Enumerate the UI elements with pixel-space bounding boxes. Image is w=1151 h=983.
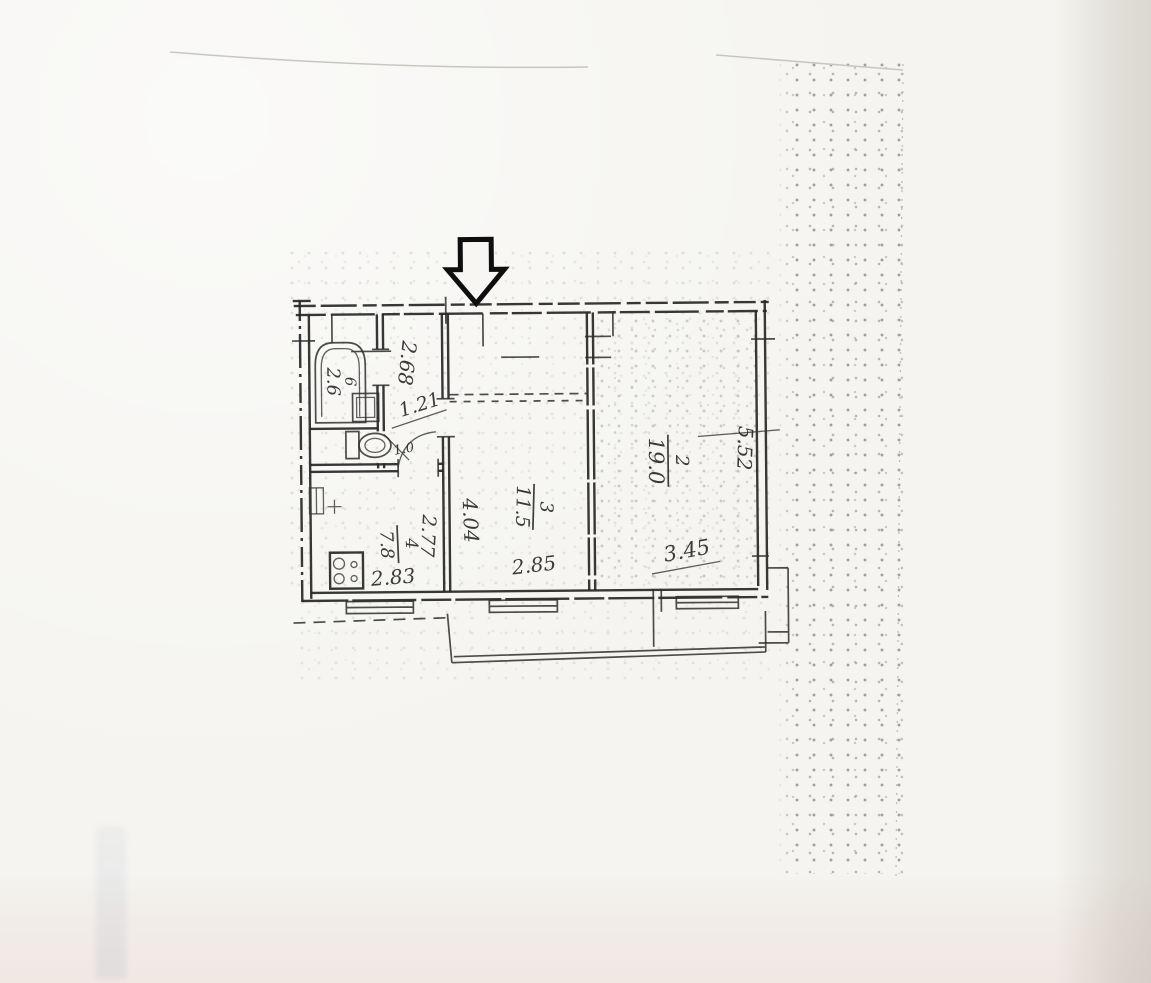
bedroom-number: 3 [535, 501, 556, 513]
bedroom-depth: 4.04 [458, 497, 484, 544]
balcony-outline [293, 611, 765, 664]
bedroom-width: 2.85 [509, 551, 557, 580]
toilet-symbol [346, 431, 391, 458]
bathroom-area: 2.6 [322, 366, 343, 396]
kitchen-label: 4 7.8 [375, 524, 422, 564]
living-room-area: 19.0 [644, 437, 668, 484]
kitchen-depth: 2.77 [415, 513, 440, 558]
living-room-depth: 5.52 [732, 425, 758, 471]
bedroom-area: 11.5 [511, 485, 534, 528]
hall-width: 1.21 [396, 388, 443, 422]
scanned-document-page: 2 19.0 5.52 3.45 3 11.5 4.04 2.85 4 7.8 … [0, 0, 1151, 983]
stove-symbol [330, 552, 363, 588]
hall-depth: 2.68 [393, 339, 422, 387]
plan-walls [292, 294, 789, 647]
wc-area: 1.0 [392, 440, 415, 459]
gas-meter-symbol [327, 500, 341, 514]
bedroom-label: 3 11.5 [511, 483, 557, 530]
paper-edge-lines [170, 52, 903, 876]
kitchen-width: 2.83 [369, 563, 416, 590]
floor-plan-drawing: 2 19.0 5.52 3.45 3 11.5 4.04 2.85 4 7.8 … [0, 0, 1151, 983]
bathroom-label: 6 2.6 [322, 366, 359, 396]
entrance-arrow-icon [447, 239, 505, 303]
living-room-label: 2 19.0 [644, 435, 692, 487]
living-room-width: 3.45 [662, 535, 712, 567]
living-room-number: 2 [671, 454, 692, 467]
kitchen-area: 7.8 [375, 530, 397, 560]
